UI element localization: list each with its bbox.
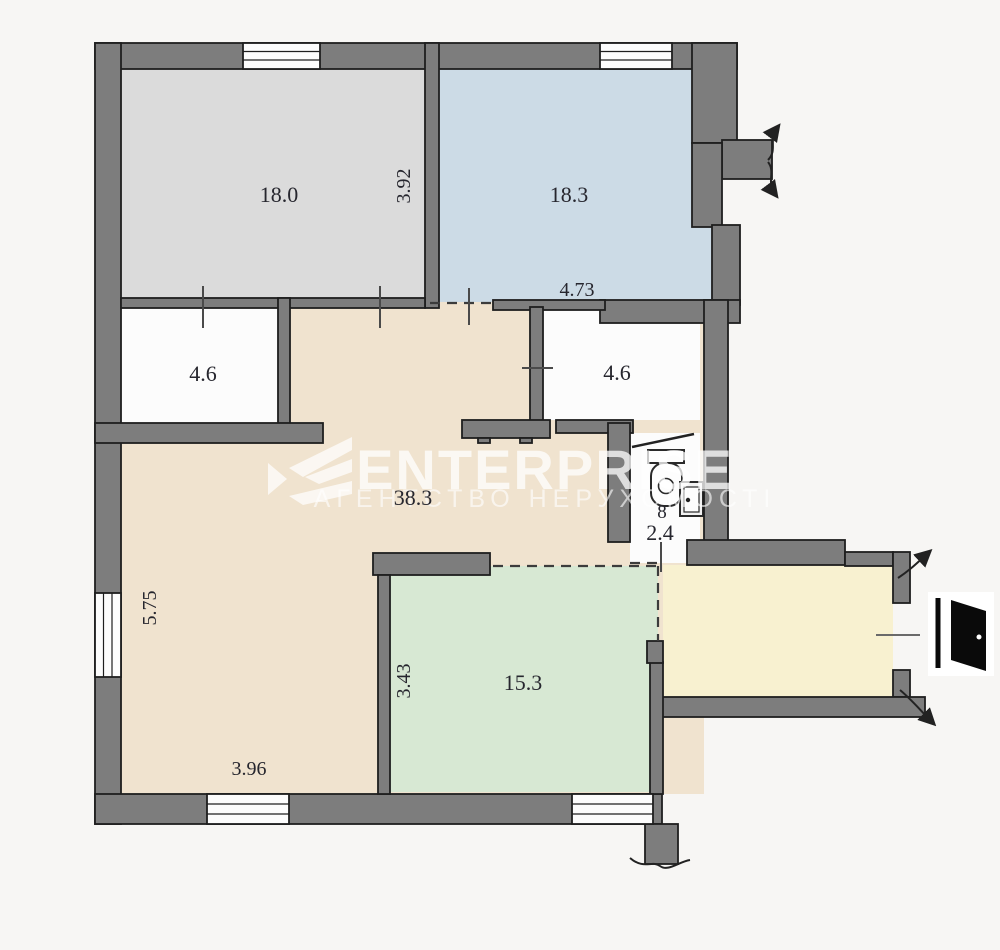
- label-dim-green-height: 3.43: [393, 664, 415, 699]
- label-dim-top-right-width: 4.73: [560, 279, 595, 301]
- wall-entry-bottom: [653, 697, 925, 717]
- label-dim-hall-width: 3.96: [232, 758, 267, 780]
- wall-entry-top-thin: [845, 552, 893, 566]
- door-icon-handle: [977, 635, 982, 640]
- wall-green-top-block: [373, 553, 490, 575]
- wall-right-step: [712, 225, 740, 305]
- wall-closet-left-bottom: [95, 423, 323, 443]
- wall-right-jut: [722, 140, 772, 179]
- label-room-top-right-area: 18.3: [550, 182, 589, 207]
- wall-closet-right-top: [493, 300, 605, 310]
- wall-green-left: [378, 575, 390, 794]
- label-room-top-left-area: 18.0: [260, 182, 299, 207]
- wall-entry-top-thick: [687, 540, 845, 565]
- wall-bottom-stub: [645, 824, 678, 864]
- window-bottom-1: [207, 794, 289, 824]
- label-wc-area: 2.4: [646, 520, 674, 545]
- wall-closet-left-right: [278, 298, 290, 433]
- door-pivot-block: [647, 641, 663, 663]
- entry-floor: [663, 565, 893, 697]
- window-bottom-2: [572, 794, 653, 824]
- label-closet-left-area: 4.6: [189, 361, 217, 386]
- window-top-1: [243, 43, 320, 69]
- wall-right-top-corner: [692, 43, 737, 143]
- label-dim-top-left-height: 3.92: [393, 169, 415, 204]
- wall-green-right: [650, 662, 663, 794]
- wall-closet-right-left: [530, 307, 543, 433]
- floor-plan-page: ENTERPRISE АГЕНТСТВО НЕРУХОМОСТІ 18.0 3.…: [0, 0, 1000, 950]
- hall-cabinet-block: [462, 420, 550, 438]
- label-green-room-area: 15.3: [504, 670, 543, 695]
- window-top-2: [600, 43, 672, 69]
- entrance-door-icon: [928, 592, 994, 676]
- label-dim-hall-height: 5.75: [139, 591, 161, 626]
- wall-entry-right-lower: [893, 670, 910, 697]
- wall-right-upper: [692, 143, 722, 227]
- window-left: [95, 593, 121, 677]
- wall-entry-right-upper: [893, 552, 910, 603]
- floor-plan: ENTERPRISE АГЕНТСТВО НЕРУХОМОСТІ 18.0 3.…: [0, 0, 1000, 950]
- label-closet-right-area: 4.6: [603, 360, 631, 385]
- wall-divider-top-rooms: [425, 43, 439, 308]
- label-hall-area: 38.3: [394, 485, 433, 510]
- watermark-subtitle: АГЕНТСТВО НЕРУХОМОСТІ: [314, 485, 777, 513]
